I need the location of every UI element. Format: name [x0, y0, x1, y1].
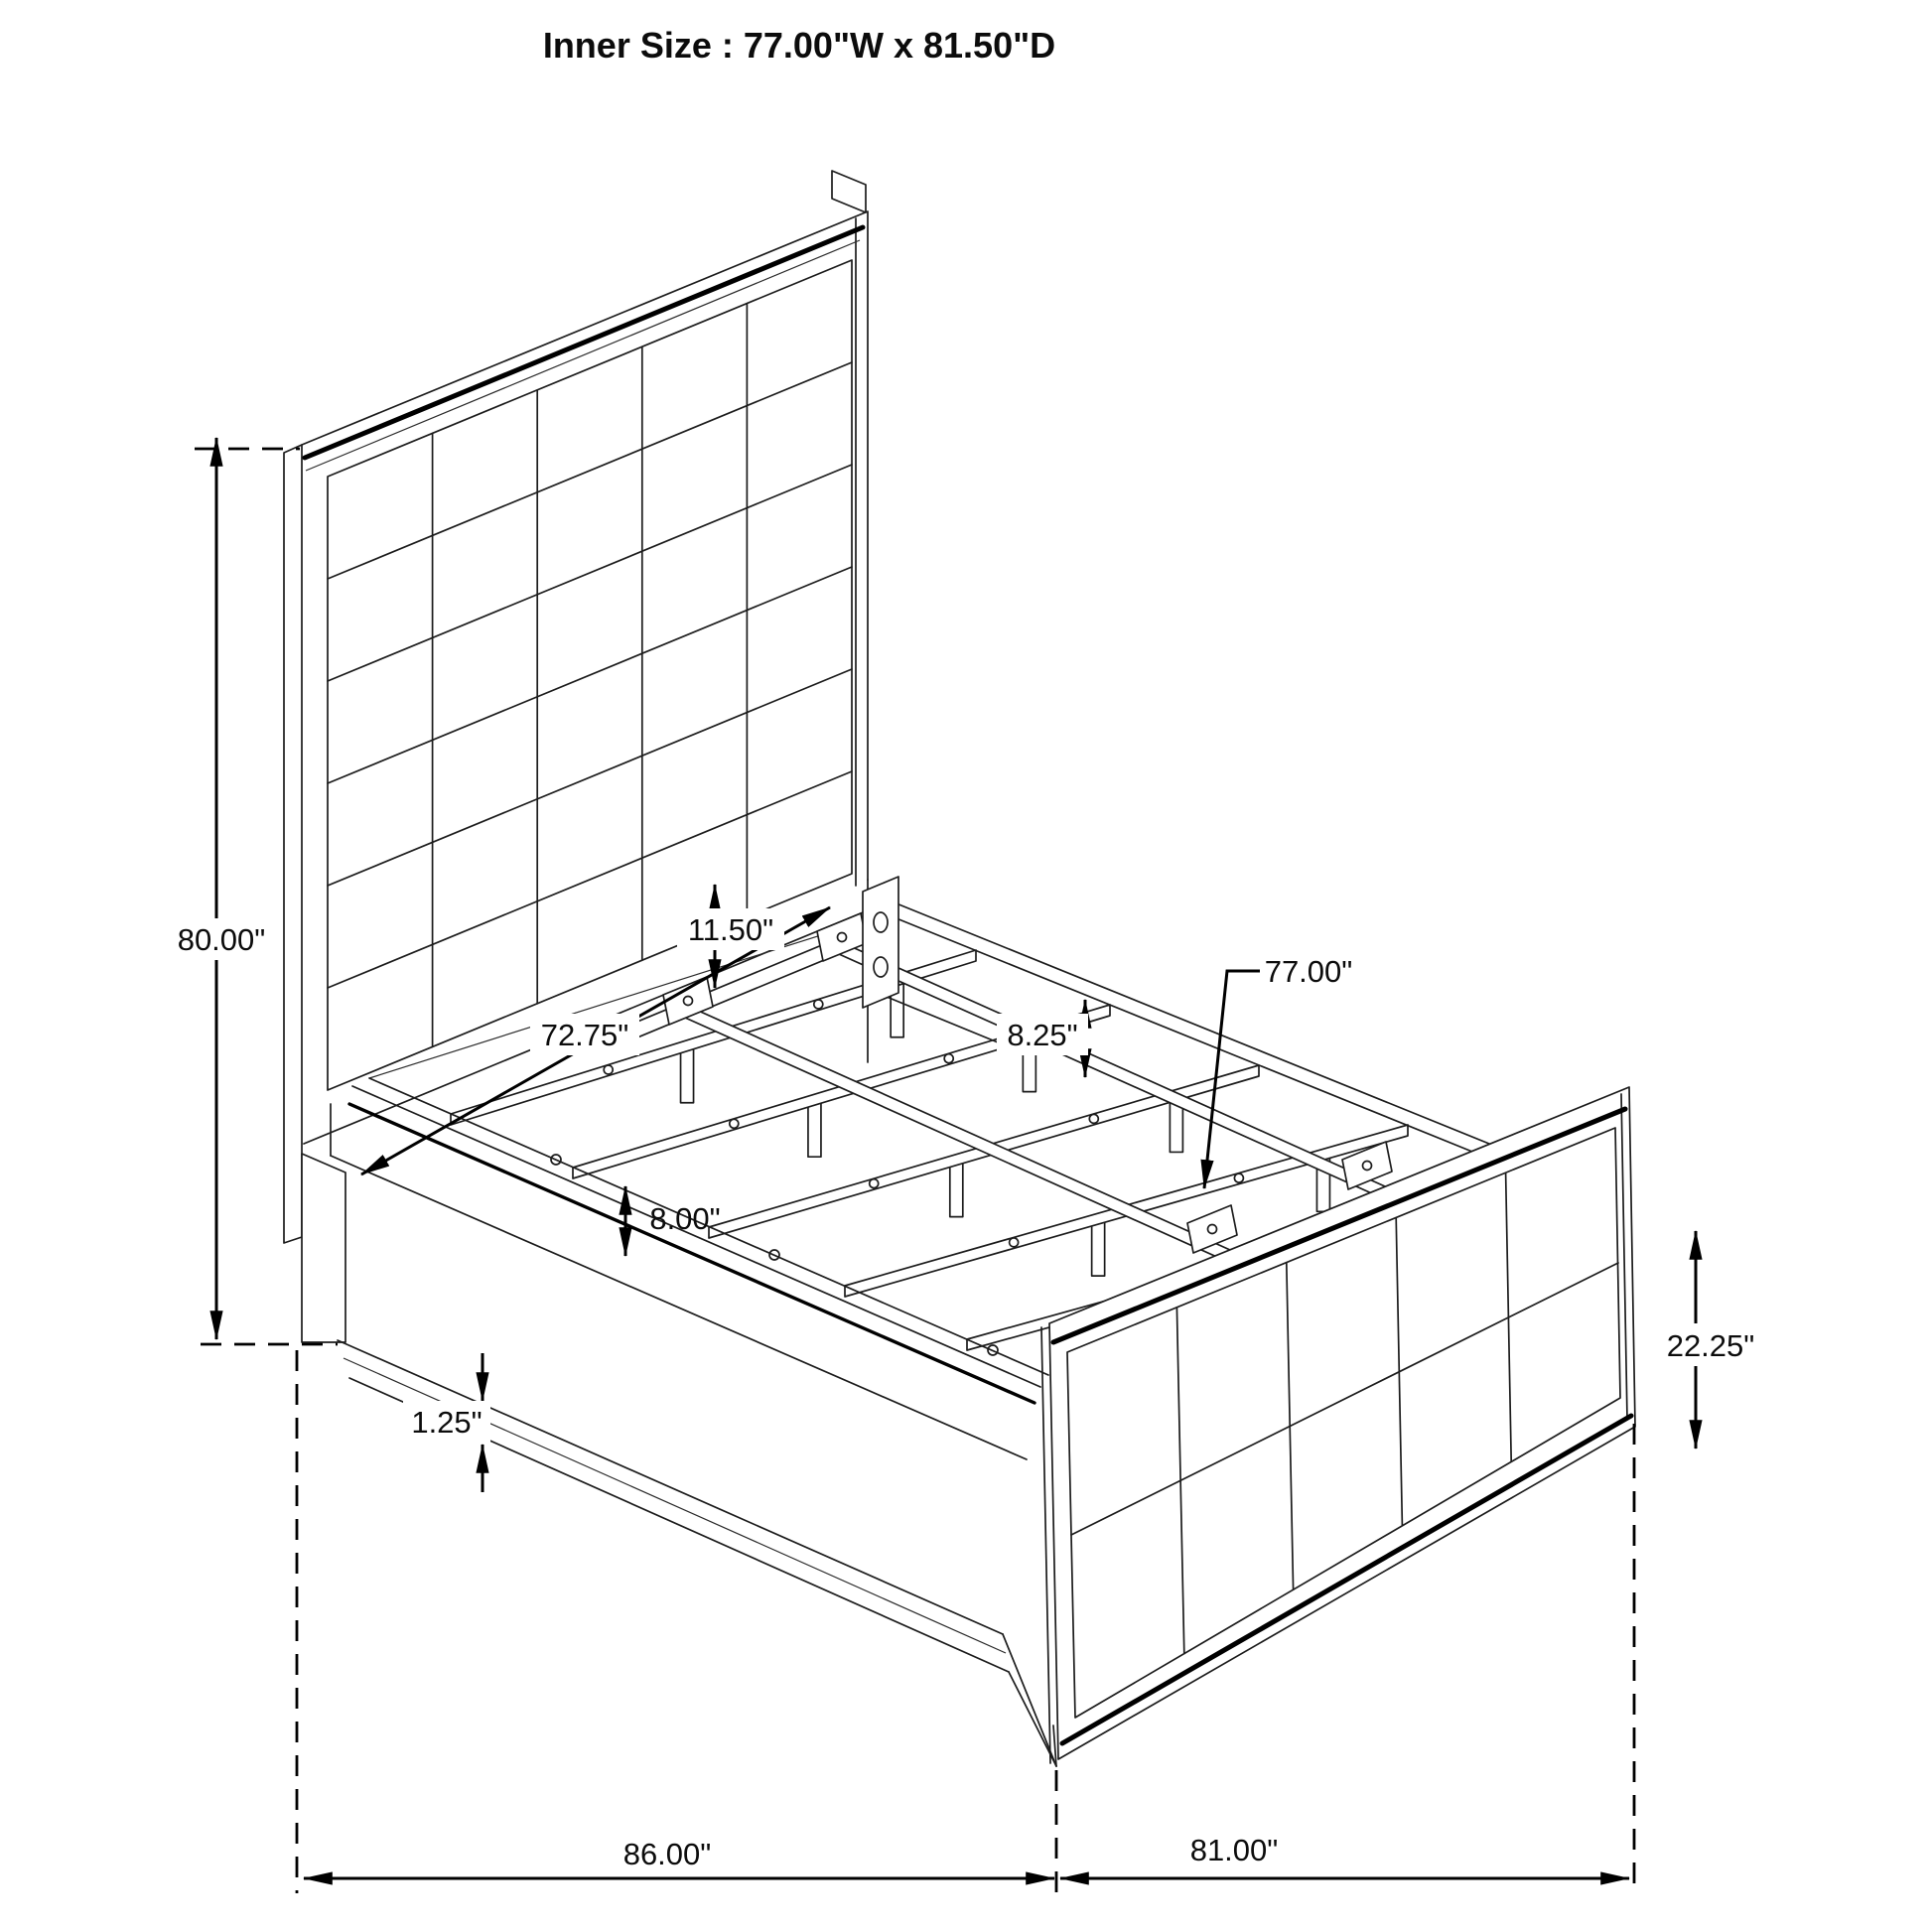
- dim-label-trim-thickness: 1.25": [411, 1405, 482, 1440]
- footboard: [1041, 1087, 1635, 1763]
- dim-label-overall-width: 86.00": [623, 1837, 712, 1871]
- dim-label-inner-rail-length: 72.75": [541, 1018, 629, 1052]
- dim-label-leg-height: 8.00": [649, 1201, 720, 1236]
- dim-label-slat-length: 77.00": [1265, 954, 1353, 989]
- dim-label-overall-depth: 81.00": [1190, 1833, 1279, 1867]
- page-title: Inner Size : 77.00"W x 81.50"D: [543, 25, 1055, 66]
- dim-label-headboard-to-slat: 11.50": [688, 912, 773, 947]
- dimension-diagram-page: 80.00" 11.50" 72.75" 8.25" 77.00" 8.00" …: [0, 0, 1932, 1932]
- dim-label-footboard-height: 22.25": [1667, 1328, 1755, 1363]
- dim-label-headboard-height: 80.00": [178, 922, 266, 957]
- technical-drawing-svg: 80.00" 11.50" 72.75" 8.25" 77.00" 8.00" …: [0, 0, 1932, 1932]
- bed-line-art: [284, 171, 1635, 1766]
- dim-label-rail-height: 8.25": [1007, 1018, 1077, 1052]
